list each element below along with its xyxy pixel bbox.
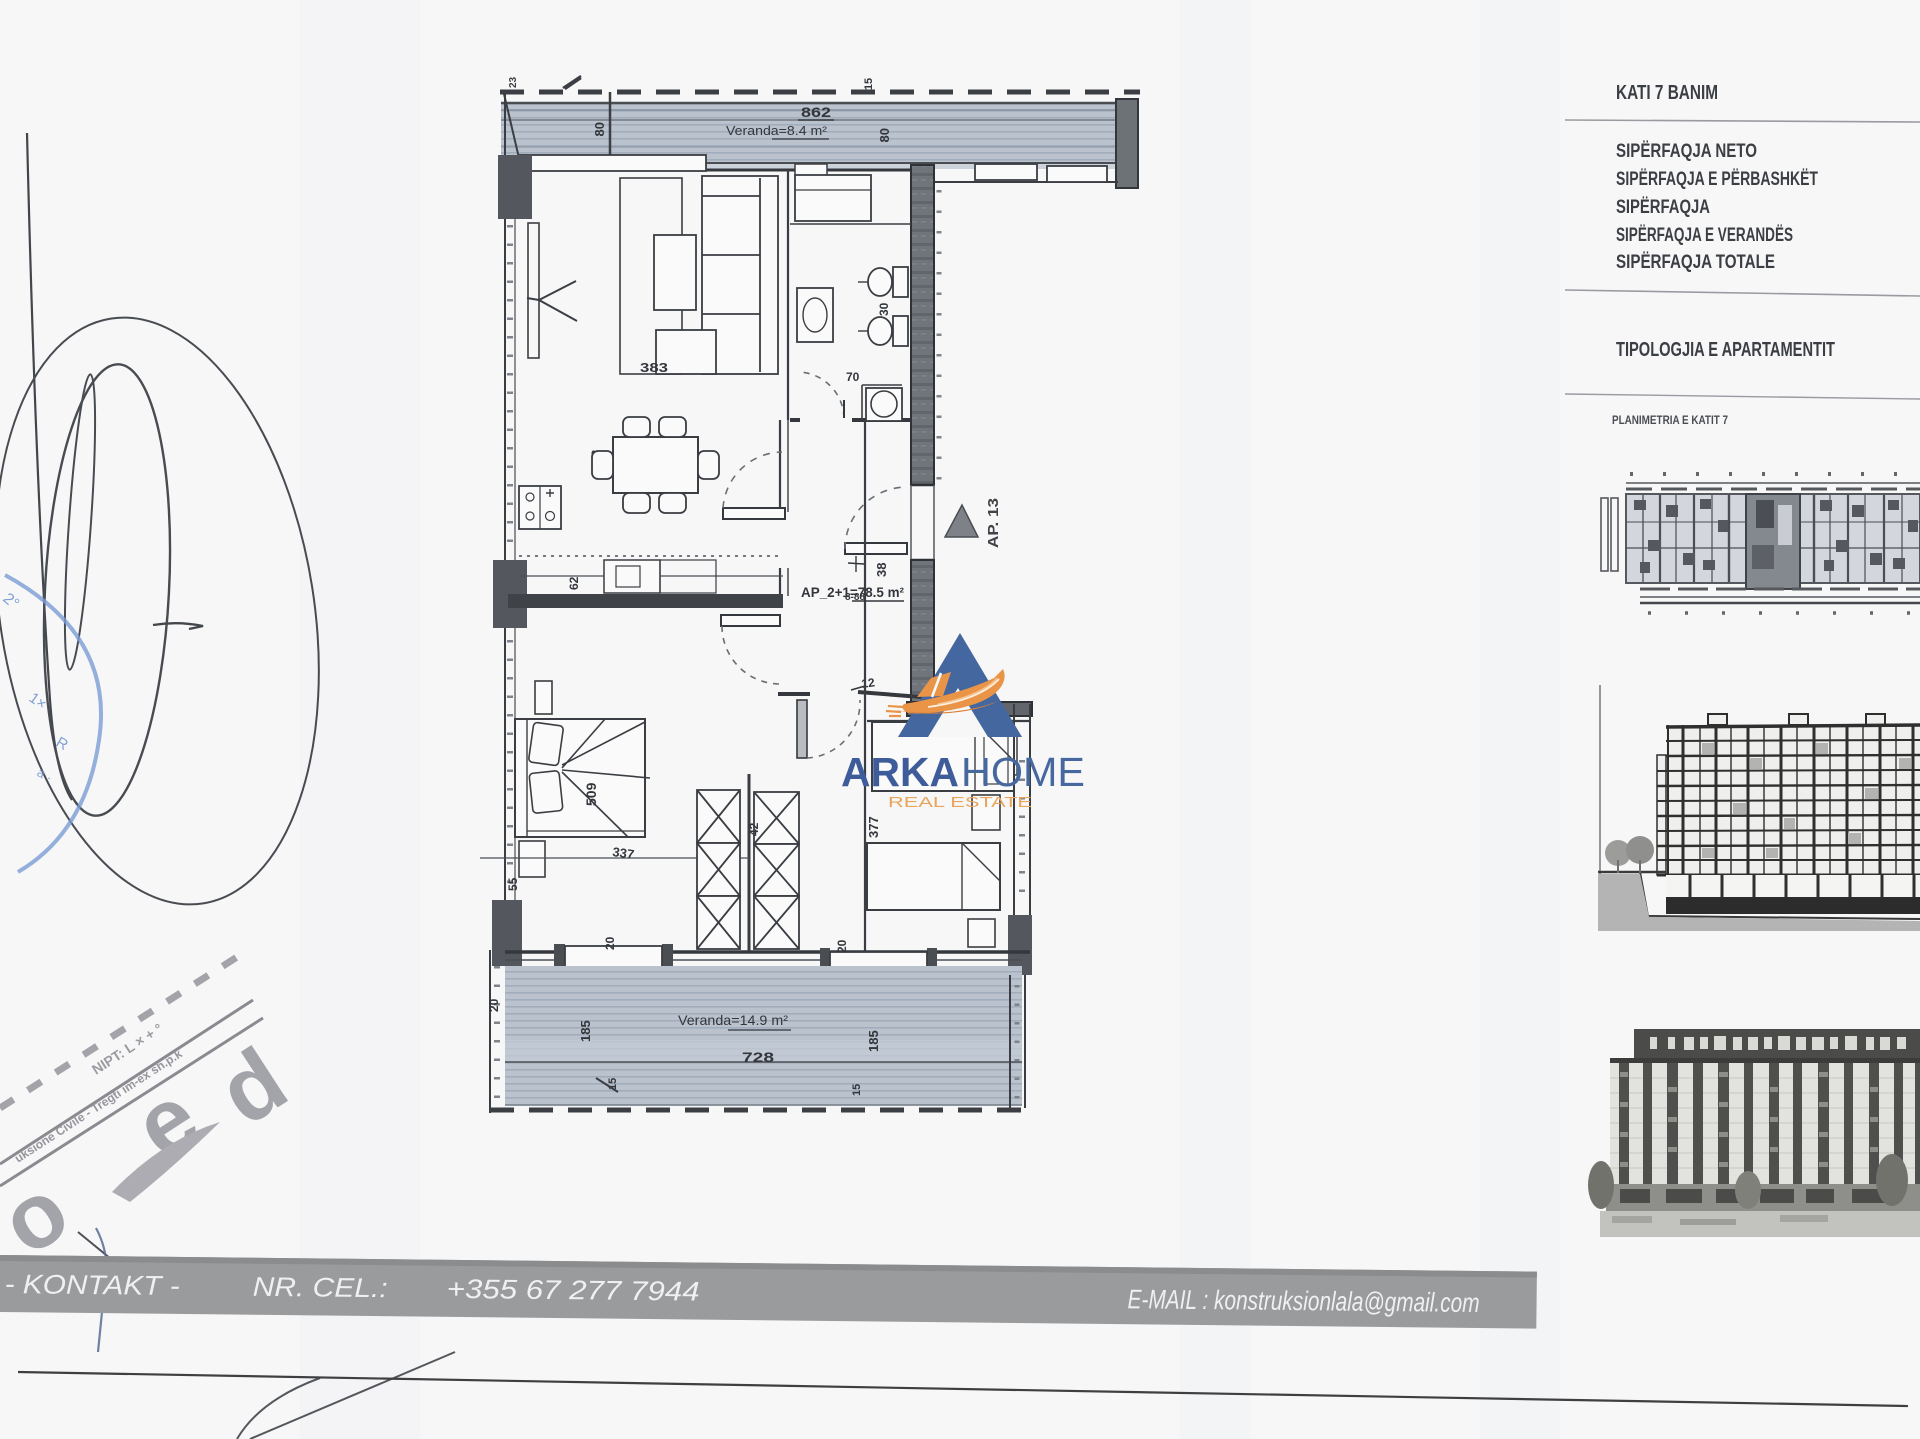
svg-text:REAL ESTATE: REAL ESTATE bbox=[888, 794, 1032, 811]
svg-text:- KONTAKT -: - KONTAKT - bbox=[5, 1269, 180, 1301]
svg-text:80: 80 bbox=[877, 128, 892, 142]
svg-text:337: 337 bbox=[612, 844, 636, 862]
svg-text:AP. 13: AP. 13 bbox=[985, 498, 1002, 548]
svg-text:55: 55 bbox=[506, 877, 520, 891]
svg-text:15: 15 bbox=[863, 78, 875, 90]
svg-text:15: 15 bbox=[851, 1084, 863, 1096]
svg-text:SIPËRFAQJA E VERANDËS: SIPËRFAQJA E VERANDËS bbox=[1616, 225, 1793, 246]
svg-text:20: 20 bbox=[487, 998, 501, 1012]
svg-text:62: 62 bbox=[567, 576, 581, 590]
svg-text:728: 728 bbox=[742, 1049, 774, 1065]
svg-text:42: 42 bbox=[747, 822, 761, 836]
svg-text:862: 862 bbox=[801, 104, 831, 120]
svg-text:Veranda=8.4 m²: Veranda=8.4 m² bbox=[726, 123, 828, 138]
svg-text:38: 38 bbox=[874, 563, 889, 577]
svg-text:E-MAIL : konstruksionlala@gma: E-MAIL : konstruksionlala@gmail.com bbox=[1127, 1284, 1479, 1318]
svg-text:KATI 7 BANIM: KATI 7 BANIM bbox=[1616, 82, 1718, 104]
svg-text:SIPËRFAQJA E PËRBASHKËT: SIPËRFAQJA E PËRBASHKËT bbox=[1616, 169, 1818, 190]
svg-text:Veranda=14.9 m²: Veranda=14.9 m² bbox=[678, 1012, 788, 1028]
svg-text:SIPËRFAQJA: SIPËRFAQJA bbox=[1616, 197, 1710, 218]
svg-text:509: 509 bbox=[583, 782, 599, 806]
svg-text:377: 377 bbox=[866, 816, 881, 838]
svg-text:185: 185 bbox=[866, 1030, 881, 1052]
svg-text:80: 80 bbox=[592, 122, 607, 136]
svg-text:20: 20 bbox=[603, 936, 617, 950]
svg-text:AP_2+1=78.5 m²: AP_2+1=78.5 m² bbox=[801, 584, 904, 600]
svg-text:HOME: HOME bbox=[961, 749, 1085, 795]
svg-text:30: 30 bbox=[877, 302, 891, 316]
svg-text:12: 12 bbox=[860, 675, 875, 691]
svg-text:23: 23 bbox=[508, 76, 519, 88]
svg-text:NR. CEL.:: NR. CEL.: bbox=[253, 1272, 388, 1303]
svg-text:20: 20 bbox=[835, 939, 849, 953]
svg-text:185: 185 bbox=[578, 1020, 593, 1042]
svg-text:ARKA: ARKA bbox=[841, 749, 959, 795]
svg-text:SIPËRFAQJA TOTALE: SIPËRFAQJA TOTALE bbox=[1616, 252, 1775, 273]
svg-text:SIPËRFAQJA NETO: SIPËRFAQJA NETO bbox=[1616, 141, 1757, 162]
svg-text:+355 67 277 7944: +355 67 277 7944 bbox=[446, 1274, 699, 1307]
svg-text:383: 383 bbox=[640, 360, 668, 375]
svg-text:TIPOLOGJIA E APARTAMENTIT: TIPOLOGJIA E APARTAMENTIT bbox=[1616, 339, 1835, 361]
svg-text:PLANIMETRIA E KATIT 7: PLANIMETRIA E KATIT 7 bbox=[1612, 413, 1728, 427]
svg-text:70: 70 bbox=[846, 370, 860, 384]
